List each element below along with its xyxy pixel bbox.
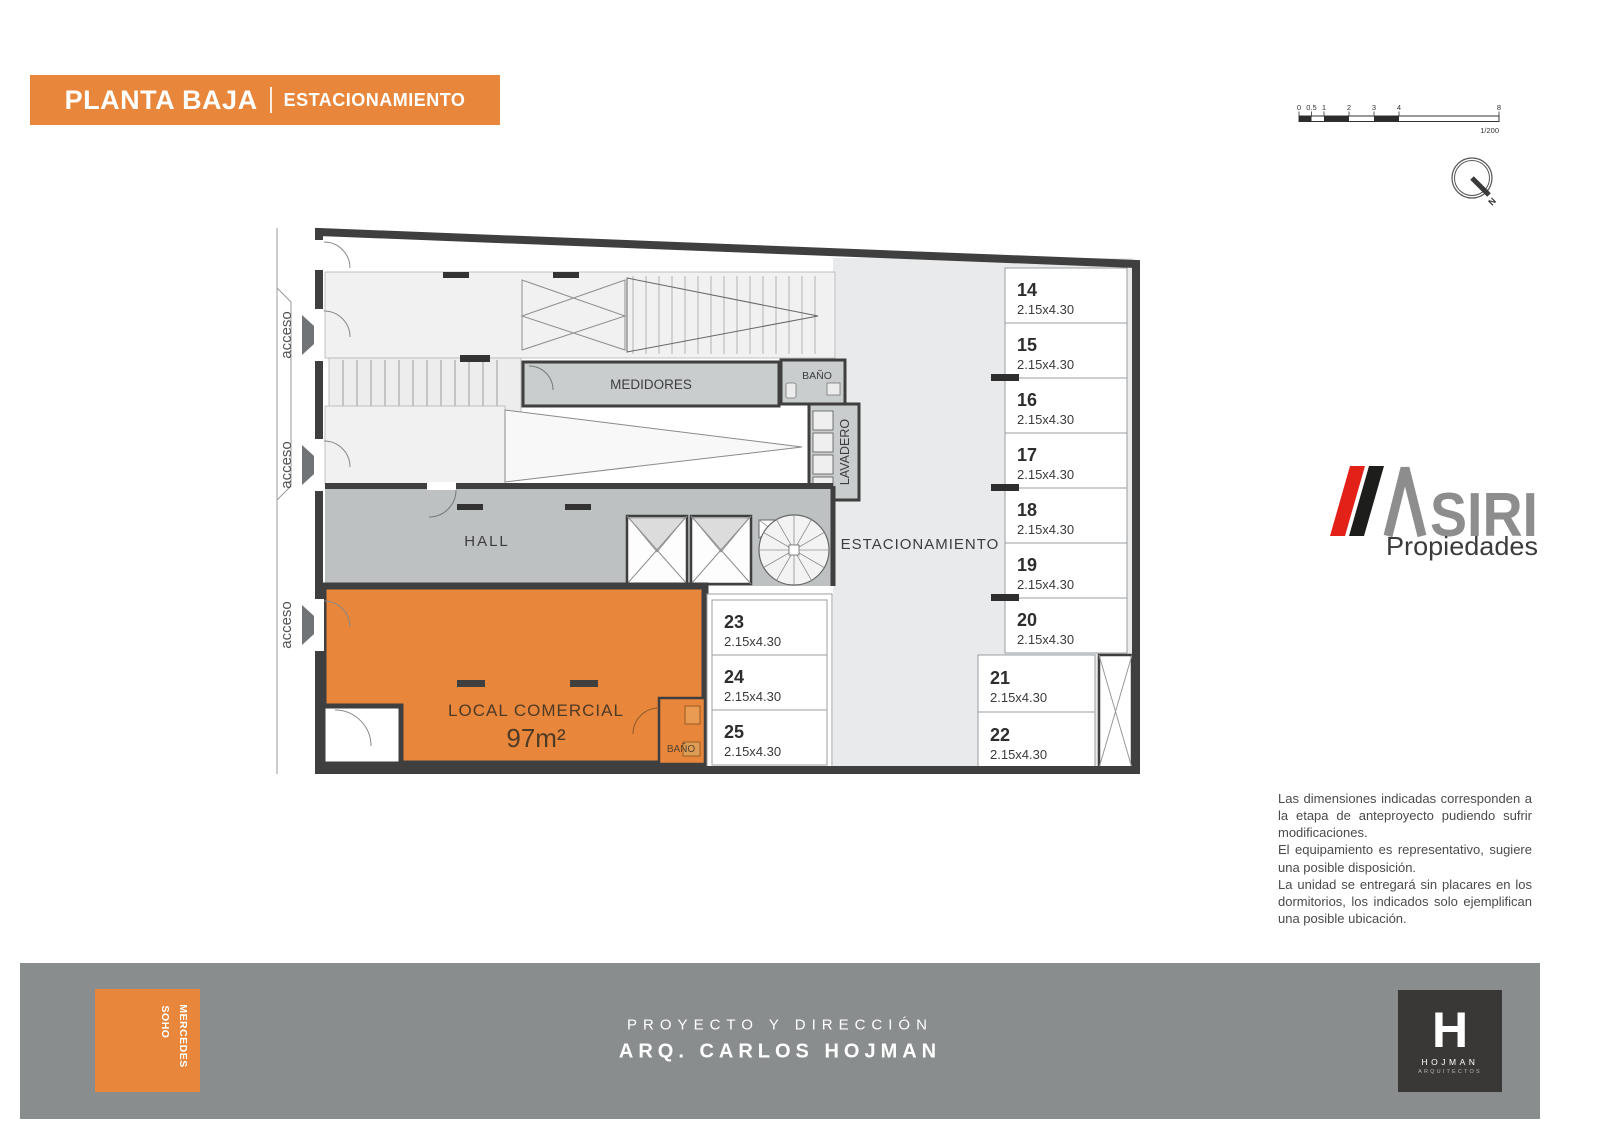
parking-spot: 21 2.15x4.30 <box>978 655 1095 712</box>
soho-mercedes-logo: SOHO MERCEDES <box>95 989 200 1092</box>
scale-segment <box>1324 116 1349 122</box>
soho-logo-line2: MERCEDES <box>177 1004 189 1068</box>
lower-corridor <box>325 406 505 484</box>
scale-bar: 0 0.5 1 2 3 4 8 1/200 <box>1293 100 1523 145</box>
spot-number: 14 <box>1017 280 1037 300</box>
access-label: acceso <box>278 441 295 489</box>
page-title: PLANTA BAJA <box>65 85 258 116</box>
room-label-hall: HALL <box>464 533 510 550</box>
parking-spot: 22 2.15x4.30 <box>978 712 1095 768</box>
scale-segment <box>1374 116 1399 122</box>
siri-logo: SIRI Propiedades <box>1298 452 1543 562</box>
plan-sheet: PLANTA BAJA ESTACIONAMIENTO 0 0.5 1 2 3 … <box>0 0 1600 1145</box>
spot-size: 2.15x4.30 <box>1017 522 1074 537</box>
wall-stub <box>457 504 483 510</box>
title-divider <box>270 87 272 113</box>
parking-spot: 15 2.15x4.30 <box>1005 323 1127 378</box>
scale-tick: 0 <box>1297 103 1301 112</box>
spiral-stair <box>759 515 829 585</box>
room-label-lavadero: LAVADERO <box>838 419 852 486</box>
scale-tick: 0.5 <box>1306 103 1316 112</box>
parking-spot: 19 2.15x4.30 <box>1005 543 1127 598</box>
wall-stub <box>553 272 579 278</box>
door-gap <box>314 599 324 651</box>
building-plan: MEDIDORES BAÑO LAVADERO HALL <box>314 232 1136 770</box>
local-area-label: 97m² <box>506 723 566 753</box>
title-banner: PLANTA BAJA ESTACIONAMIENTO <box>30 75 500 125</box>
parking-spot: 23 2.15x4.30 <box>712 600 827 655</box>
spot-number: 24 <box>724 667 744 687</box>
room-hall <box>325 486 833 586</box>
wall-stub <box>991 374 1019 381</box>
room-label-local: LOCAL COMERCIAL <box>448 701 624 720</box>
scale-segment <box>1299 116 1312 122</box>
disclaimer-text: Las dimensiones indicadas corresponden a… <box>1278 790 1532 927</box>
disclaimer-paragraph: La unidad se entregará sin placares en l… <box>1278 876 1532 927</box>
scale-tick: 1 <box>1322 103 1326 112</box>
spot-number: 25 <box>724 722 744 742</box>
door-gap <box>314 439 324 491</box>
local-entry-notch <box>323 706 401 764</box>
parking-spot: 14 2.15x4.30 <box>1005 268 1127 323</box>
spot-size: 2.15x4.30 <box>1017 577 1074 592</box>
wall-stub <box>457 680 485 687</box>
spot-number: 17 <box>1017 445 1037 465</box>
parking-spot: 20 2.15x4.30 <box>1005 598 1127 653</box>
parking-spot: 17 2.15x4.30 <box>1005 433 1127 488</box>
spot-size: 2.15x4.30 <box>1017 302 1074 317</box>
crossed-shaft <box>1099 655 1132 768</box>
spot-number: 23 <box>724 612 744 632</box>
wall-stub <box>565 504 591 510</box>
spot-size: 2.15x4.30 <box>1017 467 1074 482</box>
scale-ratio: 1/200 <box>1480 126 1499 135</box>
spot-number: 15 <box>1017 335 1037 355</box>
room-label-bano-local: BAÑO <box>667 742 696 755</box>
spot-size: 2.15x4.30 <box>1017 632 1074 647</box>
disclaimer-paragraph: El equipamiento es representativo, sugie… <box>1278 841 1532 875</box>
spot-number: 21 <box>990 668 1010 688</box>
floor-plan: acceso acceso acceso <box>258 222 1148 780</box>
architect-name: ARQ. CARLOS HOJMAN <box>619 1041 941 1064</box>
access-label: acceso <box>278 311 295 359</box>
spot-size: 2.15x4.30 <box>724 744 781 759</box>
hojman-logo-name: HOJMAN <box>1422 1057 1479 1067</box>
parking-column-right: 14 2.15x4.30 15 2.15x4.30 16 2.15x4.30 1… <box>991 268 1127 653</box>
north-compass-icon: N <box>1442 148 1506 220</box>
spot-number: 20 <box>1017 610 1037 630</box>
hojman-arquitectos-logo: H HOJMAN ARQUITECTOS <box>1398 990 1502 1092</box>
upper-corridor <box>325 272 835 358</box>
spot-number: 19 <box>1017 555 1037 575</box>
spot-size: 2.15x4.30 <box>990 690 1047 705</box>
room-label-medidores: MEDIDORES <box>610 377 692 392</box>
room-label-estacionamiento: ESTACIONAMIENTO <box>841 536 1000 553</box>
compass-needle <box>1472 178 1489 195</box>
sink-fixture <box>827 383 840 395</box>
scale-tick: 8 <box>1497 103 1501 112</box>
parking-pair-bottom: 21 2.15x4.30 22 2.15x4.30 <box>978 655 1095 768</box>
parking-spot: 16 2.15x4.30 <box>1005 378 1127 433</box>
footer-band: SOHO MERCEDES PROYECTO Y DIRECCIÓN ARQ. … <box>20 963 1540 1119</box>
soho-logo-line1: SOHO <box>159 1006 171 1039</box>
parking-spot: 25 2.15x4.30 <box>712 710 827 765</box>
sink-fixture <box>685 706 700 724</box>
wall-stub <box>991 594 1019 601</box>
compass-north-label: N <box>1486 196 1498 208</box>
parking-column-center: 23 2.15x4.30 24 2.15x4.30 25 2.15x4.30 <box>707 594 832 770</box>
spot-size: 2.15x4.30 <box>724 689 781 704</box>
project-credit: PROYECTO Y DIRECCIÓN ARQ. CARLOS HOJMAN <box>619 1017 941 1064</box>
access-label: acceso <box>278 601 295 649</box>
wall-stub <box>460 355 490 362</box>
spot-size: 2.15x4.30 <box>724 634 781 649</box>
wall-stub <box>443 272 469 278</box>
door-gap <box>427 482 456 490</box>
logo-tagline: Propiedades <box>1386 531 1538 561</box>
project-label: PROYECTO Y DIRECCIÓN <box>619 1017 941 1034</box>
spot-number: 18 <box>1017 500 1037 520</box>
toilet-fixture <box>786 383 796 398</box>
parking-spot: 18 2.15x4.30 <box>1005 488 1127 543</box>
door-gap <box>314 309 324 361</box>
wall-stub <box>991 484 1019 491</box>
hojman-logo-sub: ARQUITECTOS <box>1418 1069 1482 1075</box>
spot-number: 22 <box>990 725 1010 745</box>
scale-tick-marks <box>1299 112 1499 117</box>
page-subtitle: ESTACIONAMIENTO <box>284 90 466 111</box>
scale-tick: 3 <box>1372 103 1376 112</box>
parking-spot: 24 2.15x4.30 <box>712 655 827 710</box>
spot-size: 2.15x4.30 <box>1017 412 1074 427</box>
door-gap <box>314 240 324 270</box>
logo-triangle-icon <box>1388 468 1422 536</box>
spot-number: 16 <box>1017 390 1037 410</box>
disclaimer-paragraph: Las dimensiones indicadas corresponden a… <box>1278 790 1532 841</box>
scale-tick: 2 <box>1347 103 1351 112</box>
room-label-bano-top: BAÑO <box>802 369 832 382</box>
spot-size: 2.15x4.30 <box>1017 357 1074 372</box>
spot-size: 2.15x4.30 <box>990 747 1047 762</box>
scale-tick: 4 <box>1397 103 1401 112</box>
wall-stub <box>570 680 598 687</box>
hojman-logo-letter: H <box>1432 1008 1468 1053</box>
